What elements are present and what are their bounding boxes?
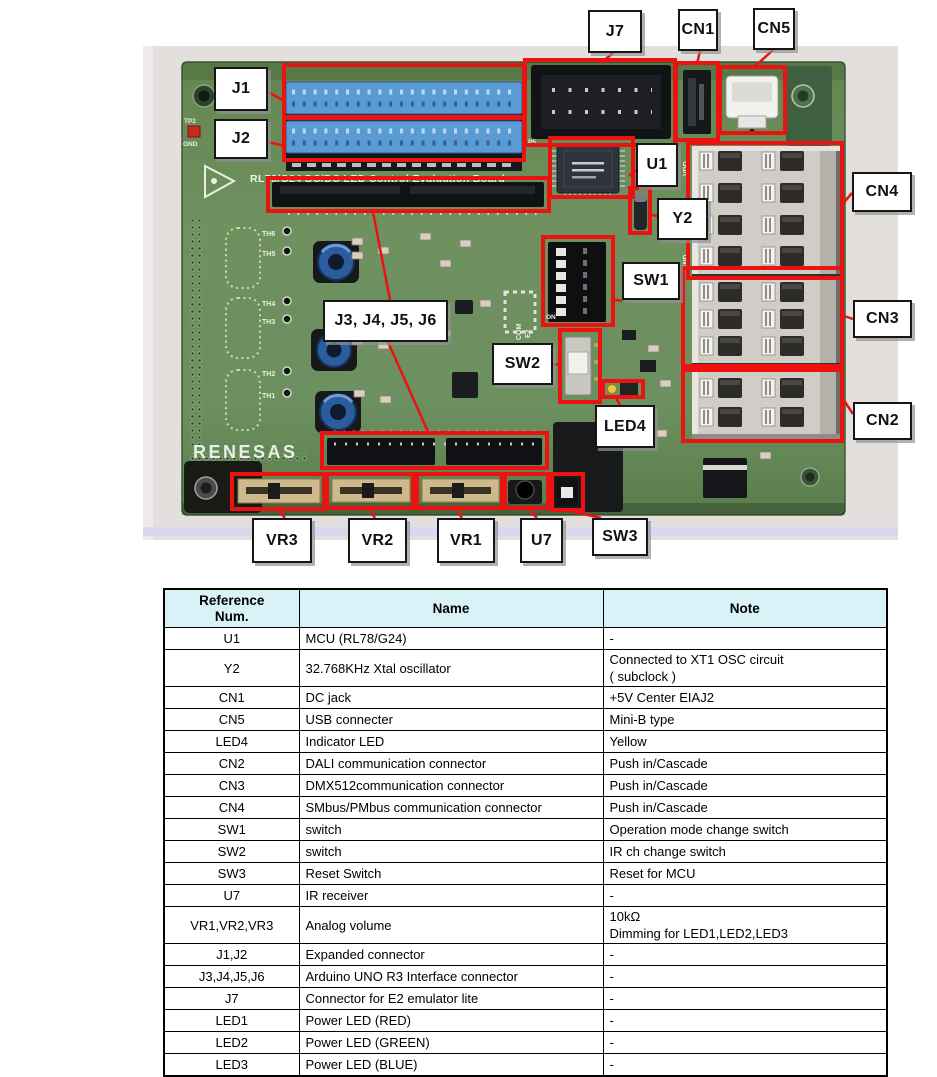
cell-note: Operation mode change switch	[603, 819, 887, 841]
table-row: U7IR receiver-	[164, 885, 887, 907]
cell-note: -	[603, 1054, 887, 1077]
table-row: CN1DC jack+5V Center EIAJ2	[164, 687, 887, 709]
reset-switch-sw3	[556, 478, 578, 506]
cell-name: Power LED (BLUE)	[299, 1054, 603, 1077]
silkscreen-text-TH3: TH3	[262, 319, 275, 326]
cell-name: Arduino UNO R3 Interface connector	[299, 966, 603, 988]
cell-reference-num: SW3	[164, 863, 299, 885]
connector-j7	[531, 65, 671, 139]
cell-note: -	[603, 966, 887, 988]
table-row: LED3Power LED (BLUE)-	[164, 1054, 887, 1077]
cell-name: 32.768KHz Xtal oscillator	[299, 650, 603, 687]
table-row: SW1switchOperation mode change switch	[164, 819, 887, 841]
table-row: SW2switchIR ch change switch	[164, 841, 887, 863]
cell-name: Expanded connector	[299, 944, 603, 966]
cell-name: DMX512communication connector	[299, 775, 603, 797]
cell-reference-num: CN3	[164, 775, 299, 797]
silkscreen-text-ON: ON	[546, 314, 556, 321]
cell-reference-num: U7	[164, 885, 299, 907]
cell-note: -	[603, 628, 887, 650]
table-row: CN5USB connecterMini-B type	[164, 709, 887, 731]
cell-reference-num: LED4	[164, 731, 299, 753]
leader-line-SW2	[553, 364, 561, 365]
cell-name: DC jack	[299, 687, 603, 709]
cell-note: Connected to XT1 OSC circuit ( subclock …	[603, 650, 887, 687]
table-row: CN3DMX512communication connectorPush in/…	[164, 775, 887, 797]
cell-name: Power LED (GREEN)	[299, 1032, 603, 1054]
silkscreen-text-COM: COM	[516, 324, 523, 341]
cell-reference-num: Y2	[164, 650, 299, 687]
cell-note: Push in/Cascade	[603, 753, 887, 775]
silkscreen-text-TP2: TP2	[184, 118, 196, 125]
silkscreen-text-TH1: TH1	[262, 393, 275, 400]
mcu-u1	[554, 145, 622, 196]
table-row: LED4Indicator LEDYellow	[164, 731, 887, 753]
silkscreen-text-GND: GND	[183, 141, 198, 148]
cell-note: Push in/Cascade	[603, 797, 887, 819]
cell-reference-num: LED3	[164, 1054, 299, 1077]
cell-note: -	[603, 988, 887, 1010]
connector-cn1	[683, 70, 711, 134]
table-row: CN2DALI communication connectorPush in/C…	[164, 753, 887, 775]
cell-note: -	[603, 885, 887, 907]
cell-note: +5V Center EIAJ2	[603, 687, 887, 709]
cell-reference-num: VR1,VR2,VR3	[164, 907, 299, 944]
table-row: LED2Power LED (GREEN)-	[164, 1032, 887, 1054]
component-table-body: U1MCU (RL78/G24)-Y232.768KHz Xtal oscill…	[164, 628, 887, 1077]
cell-note: 10kΩ Dimming for LED1,LED2,LED3	[603, 907, 887, 944]
col-header-name: Name	[299, 589, 603, 628]
cell-reference-num: SW1	[164, 819, 299, 841]
table-row: J7Connector for E2 emulator lite-	[164, 988, 887, 1010]
cell-name: switch	[299, 819, 603, 841]
renesas-logo: RENESAS	[193, 442, 298, 462]
table-row: VR1,VR2,VR3Analog volume10kΩ Dimming for…	[164, 907, 887, 944]
cell-name: Indicator LED	[299, 731, 603, 753]
cell-reference-num: CN2	[164, 753, 299, 775]
table-header-row: Reference Num. Name Note	[164, 589, 887, 628]
board-photo: RL78/G24 DC/DC LED Control Evaluation Bo…	[0, 0, 937, 578]
cell-reference-num: CN1	[164, 687, 299, 709]
inductors	[311, 241, 361, 433]
ir-receiver-u7	[508, 480, 542, 504]
volume-sliders	[238, 479, 499, 503]
cell-note: Reset for MCU	[603, 863, 887, 885]
cell-reference-num: LED2	[164, 1032, 299, 1054]
test-point-tp2	[188, 126, 200, 137]
led4	[608, 383, 639, 395]
table-row: CN4SMbus/PMbus communication connectorPu…	[164, 797, 887, 819]
cell-reference-num: J7	[164, 988, 299, 1010]
cell-note: -	[603, 1032, 887, 1054]
silkscreen-text-TH6: TH6	[262, 231, 275, 238]
table-row: J3,J4,J5,J6Arduino UNO R3 Interface conn…	[164, 966, 887, 988]
cell-name: Reset Switch	[299, 863, 603, 885]
cell-name: USB connecter	[299, 709, 603, 731]
cell-name: MCU (RL78/G24)	[299, 628, 603, 650]
cell-name: IR receiver	[299, 885, 603, 907]
cell-note: -	[603, 944, 887, 966]
table-row: SW3Reset SwitchReset for MCU	[164, 863, 887, 885]
table-row: Y232.768KHz Xtal oscillatorConnected to …	[164, 650, 887, 687]
cell-reference-num: U1	[164, 628, 299, 650]
table-row: LED1Power LED (RED)-	[164, 1010, 887, 1032]
cell-name: Connector for E2 emulator lite	[299, 988, 603, 1010]
component-table: Reference Num. Name Note U1MCU (RL78/G24…	[163, 588, 888, 1077]
cell-name: SMbus/PMbus communication connector	[299, 797, 603, 819]
silkscreen-text-E2: E2	[525, 329, 532, 338]
cell-name: Analog volume	[299, 907, 603, 944]
board-figure: RL78/G24 DC/DC LED Control Evaluation Bo…	[0, 0, 937, 578]
cell-note: Yellow	[603, 731, 887, 753]
cell-reference-num: CN5	[164, 709, 299, 731]
cell-note: IR ch change switch	[603, 841, 887, 863]
silkscreen-text-TH2: TH2	[262, 371, 275, 378]
crystal-y2	[634, 194, 647, 230]
cell-reference-num: J3,J4,J5,J6	[164, 966, 299, 988]
col-header-note: Note	[603, 589, 887, 628]
cell-name: Power LED (RED)	[299, 1010, 603, 1032]
cell-reference-num: SW2	[164, 841, 299, 863]
cell-note: -	[603, 1010, 887, 1032]
silkscreen-text-TH4: TH4	[262, 301, 275, 308]
cell-reference-num: LED1	[164, 1010, 299, 1032]
cell-note: Push in/Cascade	[603, 775, 887, 797]
cell-reference-num: J1,J2	[164, 944, 299, 966]
cell-note: Mini-B type	[603, 709, 887, 731]
cell-name: switch	[299, 841, 603, 863]
dip-switch-sw1	[548, 242, 606, 322]
table-row: J1,J2Expanded connector-	[164, 944, 887, 966]
silkscreen-text-TH5: TH5	[262, 251, 275, 258]
table-row: U1MCU (RL78/G24)-	[164, 628, 887, 650]
cell-reference-num: CN4	[164, 797, 299, 819]
cell-name: DALI communication connector	[299, 753, 603, 775]
col-header-reference-num: Reference Num.	[164, 589, 299, 628]
